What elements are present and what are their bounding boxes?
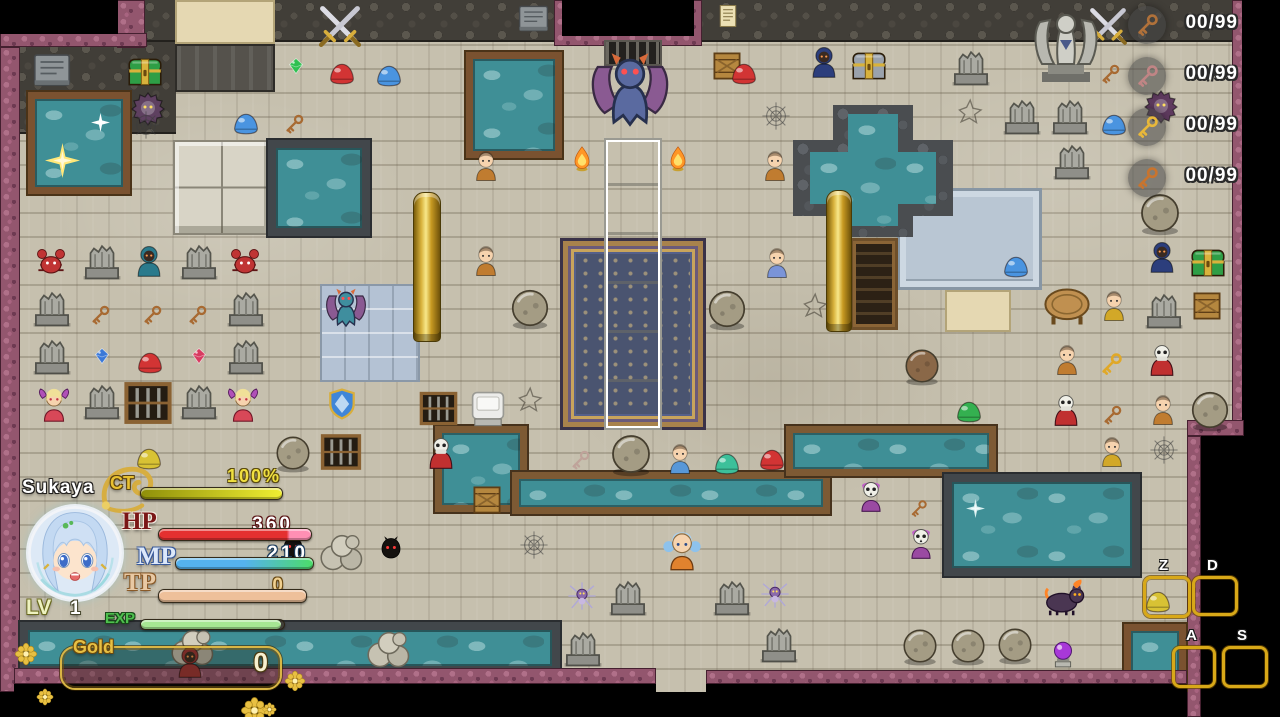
gold-key-count: 00/99 [1170, 114, 1238, 136]
exp-label: EXP [105, 610, 135, 627]
rose-key-count: 00/99 [1170, 63, 1238, 85]
ct-value: 100% [196, 466, 281, 487]
rose-key-badge [1128, 57, 1166, 95]
hotkey-label-Z: Z [1159, 557, 1168, 574]
region-gold [413, 192, 441, 342]
region-vent [604, 40, 662, 66]
key-counter-bronze-key: 00/99 [1128, 6, 1278, 52]
gold-label: Gold [73, 637, 114, 658]
region-void [562, 0, 694, 36]
hotkey-label-D: D [1207, 557, 1218, 574]
ornate-key-icon [1132, 163, 1162, 193]
region-poolframe [28, 92, 130, 194]
tp-label: TP [124, 569, 156, 597]
lv-label: LV [26, 596, 51, 620]
region-gold [826, 190, 852, 332]
key-counter-gold-key: 00/99 [1128, 108, 1278, 154]
hotkey-slot-Z[interactable] [1143, 576, 1191, 618]
region-tiles [320, 284, 420, 382]
region-blocks [173, 140, 271, 235]
region-tan [945, 290, 1011, 332]
region-purple [0, 47, 20, 692]
region-plat [175, 44, 275, 92]
mp-bar [175, 557, 314, 570]
region-purple [706, 670, 1187, 684]
region-tan [175, 0, 275, 44]
key-counter-ornate-key: 00/99 [1128, 159, 1278, 205]
exp-bar [140, 619, 285, 630]
player-portrait [28, 506, 122, 600]
region-purple [0, 33, 147, 47]
region-canal [512, 472, 830, 514]
mp-label: MP [137, 543, 176, 571]
gold-value: 0 [150, 647, 268, 678]
hp-label: HP [122, 508, 157, 536]
gold-key-icon [1132, 112, 1162, 142]
region-pooldark [268, 140, 370, 236]
region-altar [604, 138, 662, 430]
player-name: Sukaya [22, 477, 95, 499]
hotkey-slot-A[interactable] [1172, 646, 1216, 688]
ornate-key-badge [1128, 159, 1166, 197]
hotkey-label-A: A [1186, 627, 1197, 644]
sukaya-face-icon [28, 506, 122, 600]
region-poolframe [466, 52, 562, 158]
lv-value: 1 [70, 598, 81, 620]
bronze-key-count: 00/99 [1170, 12, 1238, 34]
region-void [0, 0, 118, 34]
bronze-key-icon [1132, 10, 1162, 40]
rose-key-icon [1132, 61, 1162, 91]
game-screen: Sukaya CT 100% [0, 0, 1280, 717]
region-cab [850, 238, 898, 330]
region-purple [1187, 420, 1244, 436]
hotkey-slot-D[interactable] [1192, 576, 1238, 616]
ornate-key-count: 00/99 [1170, 165, 1238, 187]
region-pooldark [944, 474, 1140, 576]
hotkey-label-S: S [1237, 627, 1247, 644]
gold-key-badge [1128, 108, 1166, 146]
key-counter-rose-key: 00/99 [1128, 57, 1278, 103]
region-void [706, 684, 1187, 717]
hp-bar [158, 528, 312, 541]
tp-bar [158, 589, 307, 603]
region-canal [786, 426, 996, 476]
bronze-key-badge [1128, 6, 1166, 44]
hotkey-slot-S[interactable] [1222, 646, 1268, 688]
ct-label: CT [110, 473, 134, 494]
ct-bar [140, 487, 283, 500]
